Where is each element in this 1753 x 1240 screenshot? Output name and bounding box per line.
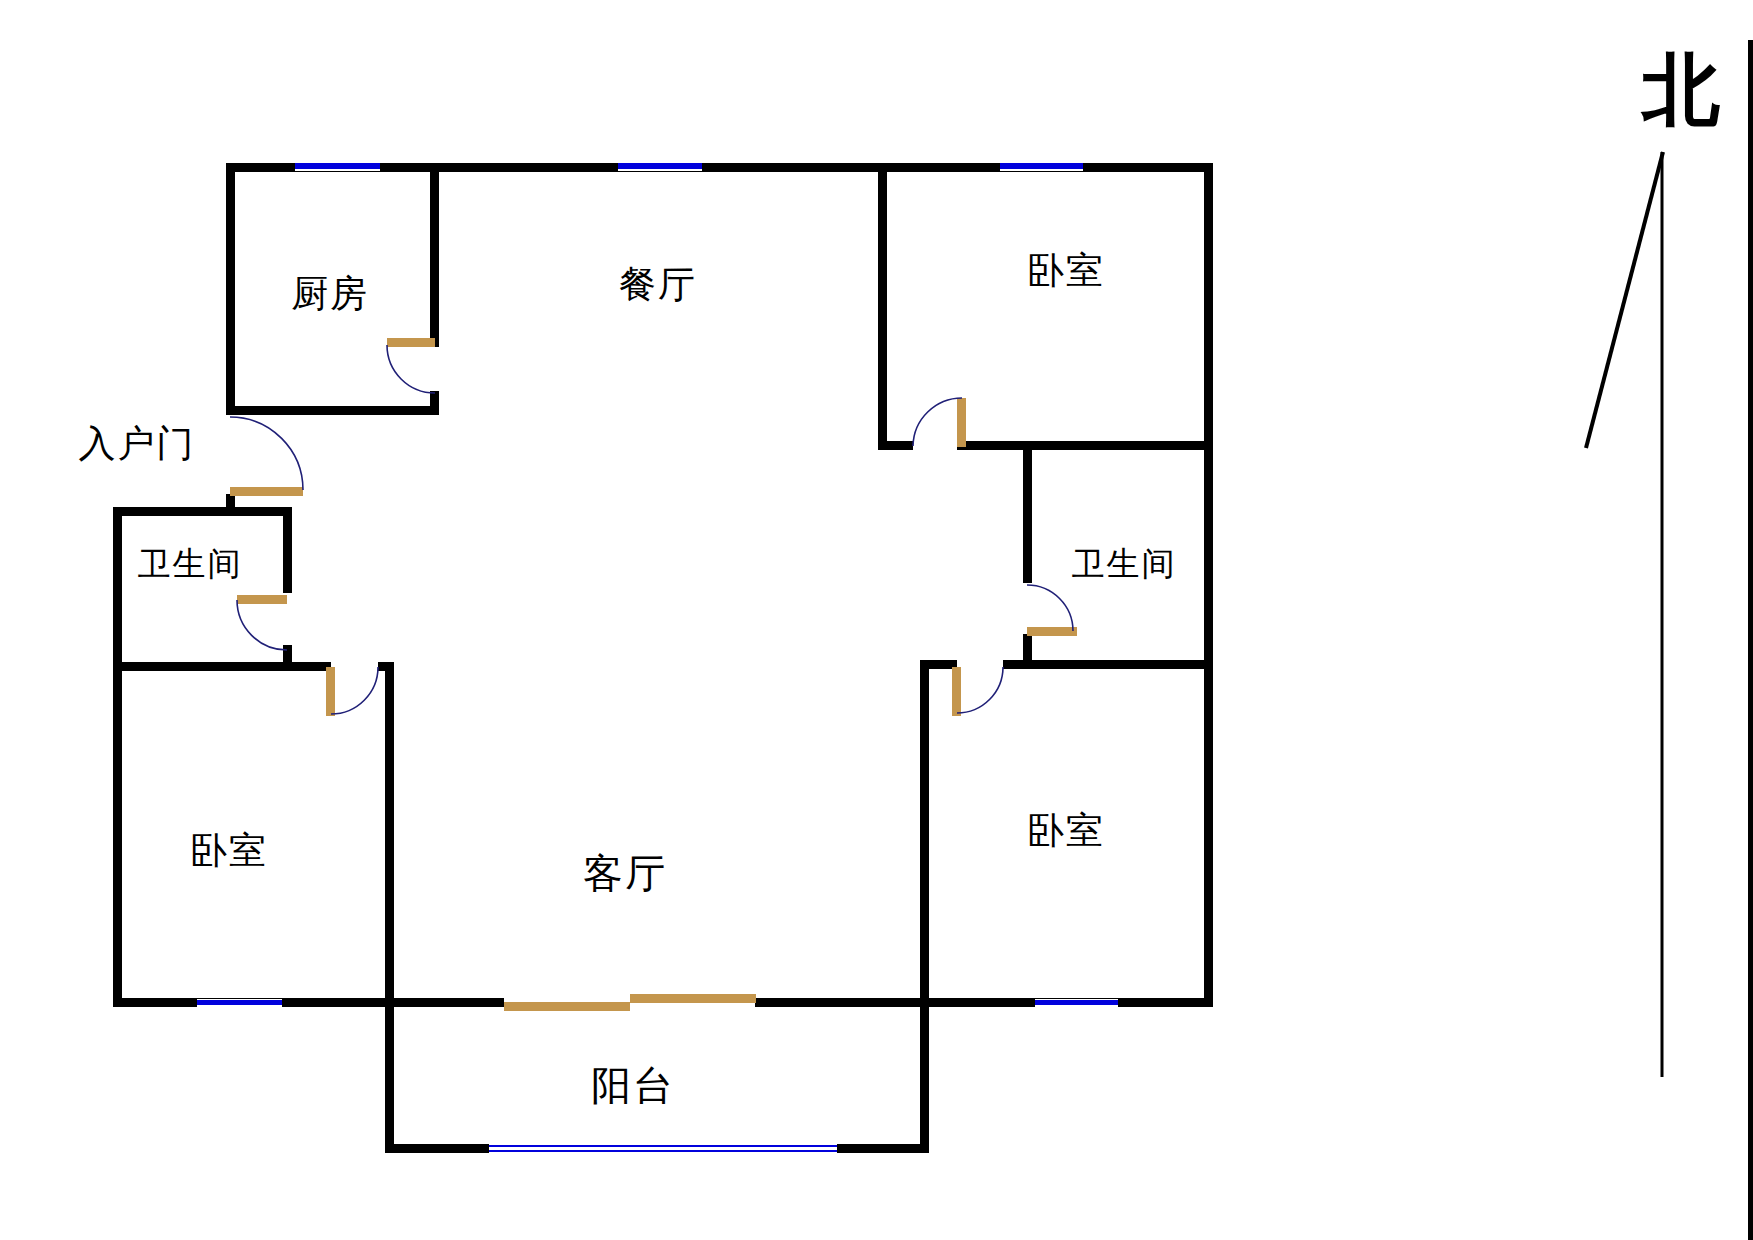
door-panel-bedroom-br [952, 667, 961, 716]
room-label-balcony: 阳台 [591, 1058, 675, 1113]
wall-living-bedroom-br-divider [920, 660, 929, 1007]
sliding-door-panel-right [630, 994, 756, 1003]
door-arc-bedroom-br [957, 667, 1003, 713]
room-label-kitchen: 厨房 [291, 269, 369, 319]
window-bedroom-br [1035, 1000, 1118, 1005]
wall-bedroom-tr-bottom-left [878, 441, 913, 450]
door-arc-entry [230, 417, 303, 490]
wall-living-bottom-left [385, 998, 504, 1007]
room-label-bathroom-left: 卫生间 [138, 542, 243, 587]
room-label-dining: 餐厅 [619, 260, 697, 310]
door-arc-bedroom-bl [331, 667, 378, 714]
room-label-bedroom-top-right: 卧室 [1027, 246, 1105, 296]
wall-bathroom-left-bottom [113, 662, 331, 671]
wall-left-exterior [113, 507, 122, 1007]
wall-bedroom-tr-bottom-right [957, 441, 1213, 450]
sliding-door-panel-left [504, 1002, 630, 1011]
door-panel-bathroom-left [237, 595, 287, 604]
wall-balcony-right [920, 998, 929, 1153]
door-panel-bedroom-bl [326, 667, 335, 716]
window-bedroom-bl [197, 1000, 282, 1005]
window-kitchen-gap [295, 169, 380, 171]
label-entry-door: 入户门 [79, 419, 196, 469]
right-edge-border [1748, 40, 1753, 1240]
room-label-bedroom-bottom-left: 卧室 [190, 826, 268, 876]
window-balcony-upper-line [489, 1145, 837, 1147]
door-arc-bathroom-right [1027, 585, 1073, 631]
wall-kitchen-right-stub [430, 391, 439, 415]
wall-balcony-left [385, 998, 394, 1153]
wall-kitchen-left-exterior [226, 163, 235, 415]
wall-bathroom-left-right-upper [283, 507, 292, 593]
door-arc-bathroom-left [237, 600, 287, 650]
room-label-bathroom-right: 卫生间 [1072, 542, 1177, 587]
wall-bedroom-br-top-right [1003, 660, 1213, 669]
wall-kitchen-right-upper [430, 163, 439, 347]
wall-dining-bedroom-divider [878, 163, 887, 450]
room-label-living: 客厅 [583, 846, 667, 901]
window-dining-gap [618, 169, 702, 171]
room-label-bedroom-bottom-right: 卧室 [1027, 806, 1105, 856]
door-arc-kitchen [387, 345, 435, 393]
compass-north-label: 北 [1642, 39, 1720, 144]
wall-bathroom-left-top [113, 507, 292, 516]
door-arc-bedroom-tr [913, 398, 962, 446]
door-panel-kitchen [387, 338, 435, 347]
door-panel-entry [230, 487, 303, 496]
wall-living-bottom-right [755, 998, 929, 1007]
door-panel-bedroom-tr [957, 398, 966, 447]
door-panel-bathroom-right [1027, 627, 1077, 636]
wall-bedroom-bl-right [385, 662, 394, 1007]
window-bedroom-tr-gap [1000, 169, 1083, 171]
arcs-and-compass-overlay [0, 0, 1753, 1240]
wall-bathroom-right-left-upper [1023, 450, 1032, 583]
wall-right-exterior [1204, 163, 1213, 1007]
floor-plan: 厨房 餐厅 卧室 入户门 卫生间 卫生间 卧室 客厅 卧室 阳台 北 [0, 0, 1753, 1240]
window-balcony-lower-line [489, 1150, 837, 1152]
wall-kitchen-bottom [226, 406, 439, 415]
north-arrow-diagonal [1586, 152, 1663, 448]
